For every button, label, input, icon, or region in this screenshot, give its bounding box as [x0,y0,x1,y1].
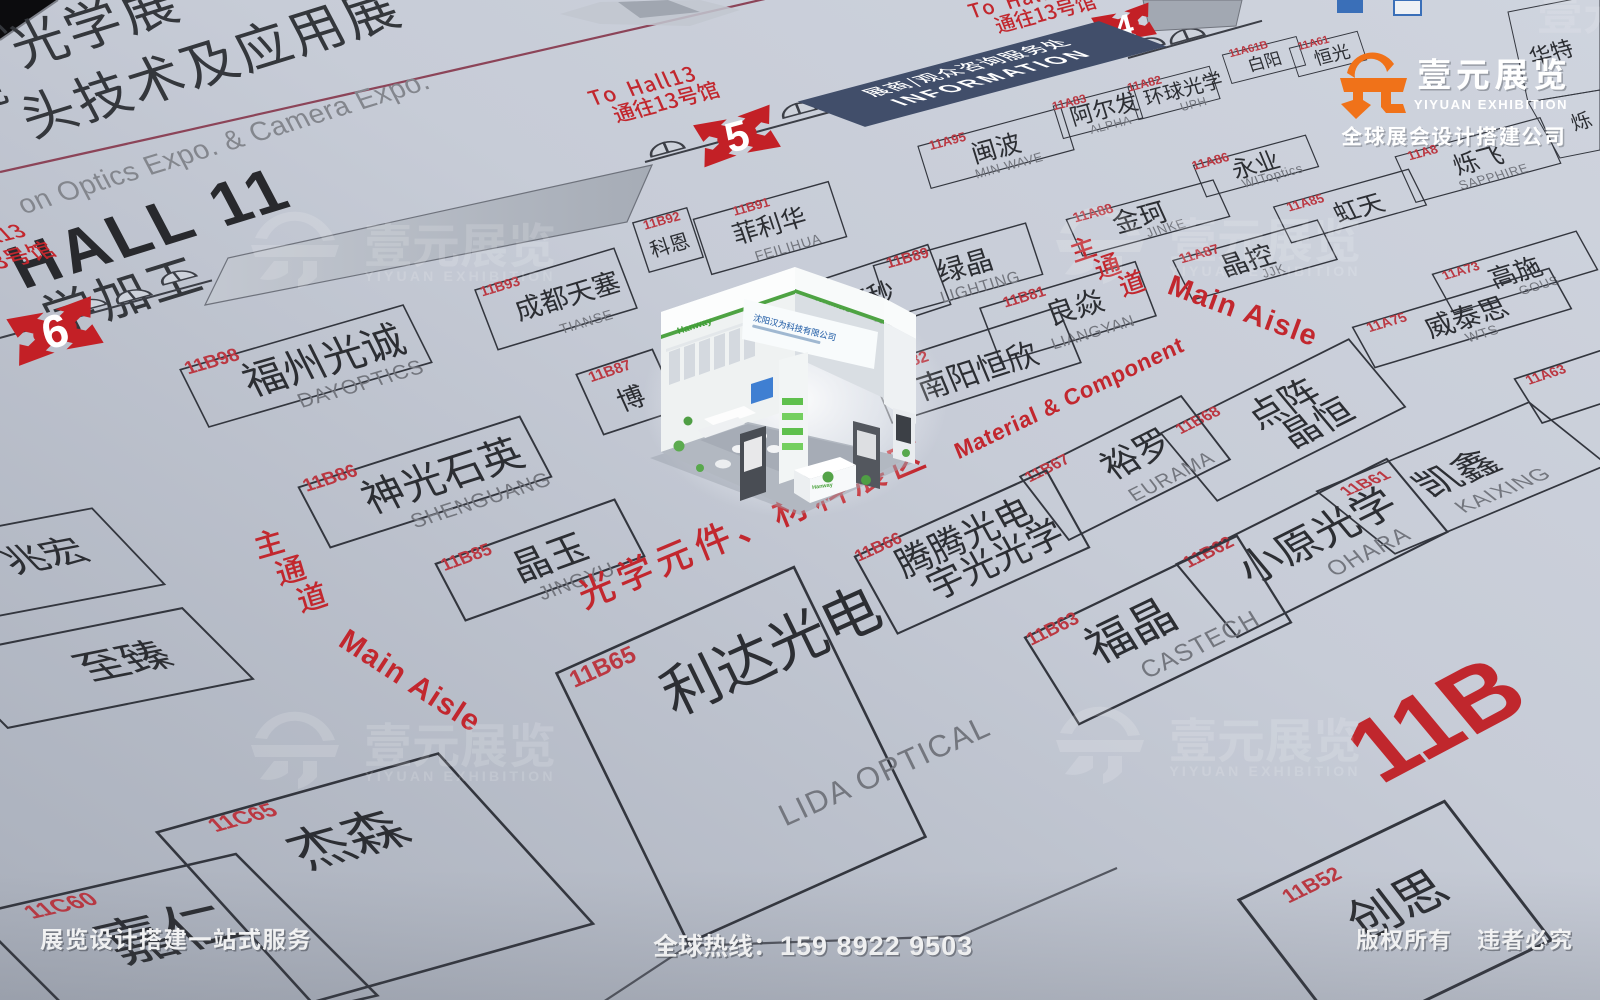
svg-text:YIYUAN EXHIBITION: YIYUAN EXHIBITION [364,268,555,284]
svg-text:YIYUAN EXHIBITION: YIYUAN EXHIBITION [1169,763,1360,779]
svg-text:YIYUAN EXHIBITION: YIYUAN EXHIBITION [364,768,555,784]
svg-text:YIYUAN EXHIBITION: YIYUAN EXHIBITION [1169,263,1360,279]
svg-text:YIYUAN EXHIBITION: YIYUAN EXHIBITION [1414,97,1568,112]
